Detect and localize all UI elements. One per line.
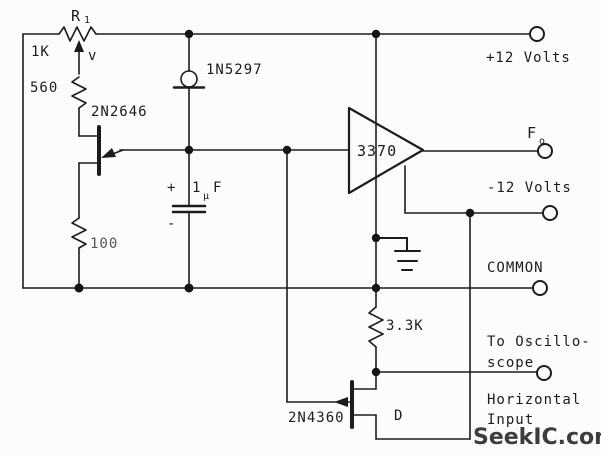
terminals	[530, 27, 557, 380]
label-wiper: v	[88, 49, 97, 63]
label-terminal-minus12: -12 Volts	[487, 181, 572, 195]
label-terminal-fo-sub: o	[539, 137, 545, 147]
terminal-scope-circle	[537, 366, 551, 380]
terminal-common-circle	[533, 281, 547, 295]
ground-symbol	[376, 238, 420, 270]
resistor-3p3k	[369, 307, 383, 347]
label-scope-line2: scope	[487, 356, 534, 370]
label-opamp-part: 3370	[357, 144, 397, 159]
potentiometer-wiper-arrow	[74, 40, 84, 74]
terminal-plus12-circle	[530, 27, 544, 41]
jfet-2n4360-symbol	[287, 213, 470, 439]
label-jfet-drain: D	[394, 409, 403, 423]
label-terminal-common: COMMON	[487, 261, 544, 275]
resistor-r1	[59, 27, 96, 41]
seekic-watermark: SeekIC.com	[473, 425, 601, 450]
resistor-560	[72, 77, 86, 136]
ujt-2n2646-symbol	[79, 127, 123, 218]
label-cap-mu: μ	[203, 192, 209, 202]
label-terminal-fo: F	[527, 126, 537, 141]
circuit-drawing	[0, 0, 601, 456]
schematic-canvas: R 1 1K v 560 2N2646 1N5297 100 + 1 μ F -…	[0, 0, 601, 456]
label-ujt-part: 2N2646	[91, 105, 148, 119]
label-jfet-part: 2N4360	[288, 411, 345, 425]
label-r1-name: R	[71, 9, 81, 24]
label-cap-plus: +	[167, 181, 176, 195]
label-r33k: 3.3K	[386, 319, 424, 333]
label-crd-part: 1N5297	[206, 63, 263, 77]
label-scope-line3: Horizontal	[487, 393, 581, 407]
terminal-minus12-circle	[543, 206, 557, 220]
label-cap-num: 1	[192, 181, 201, 195]
label-r560: 560	[30, 81, 58, 95]
label-cap-unit: F	[213, 181, 222, 195]
label-r1-sub: 1	[84, 16, 90, 26]
resistor-100	[72, 218, 86, 288]
label-terminal-plus12: +12 Volts	[486, 51, 571, 65]
label-cap-minus: -	[167, 217, 176, 231]
diode-1n5297-symbol	[174, 34, 204, 150]
label-scope-line1: To Oscillo-	[487, 335, 591, 349]
label-r100: 100	[90, 237, 118, 251]
label-r1-value: 1K	[31, 45, 50, 59]
capacitor-1uf-symbol	[173, 150, 205, 288]
